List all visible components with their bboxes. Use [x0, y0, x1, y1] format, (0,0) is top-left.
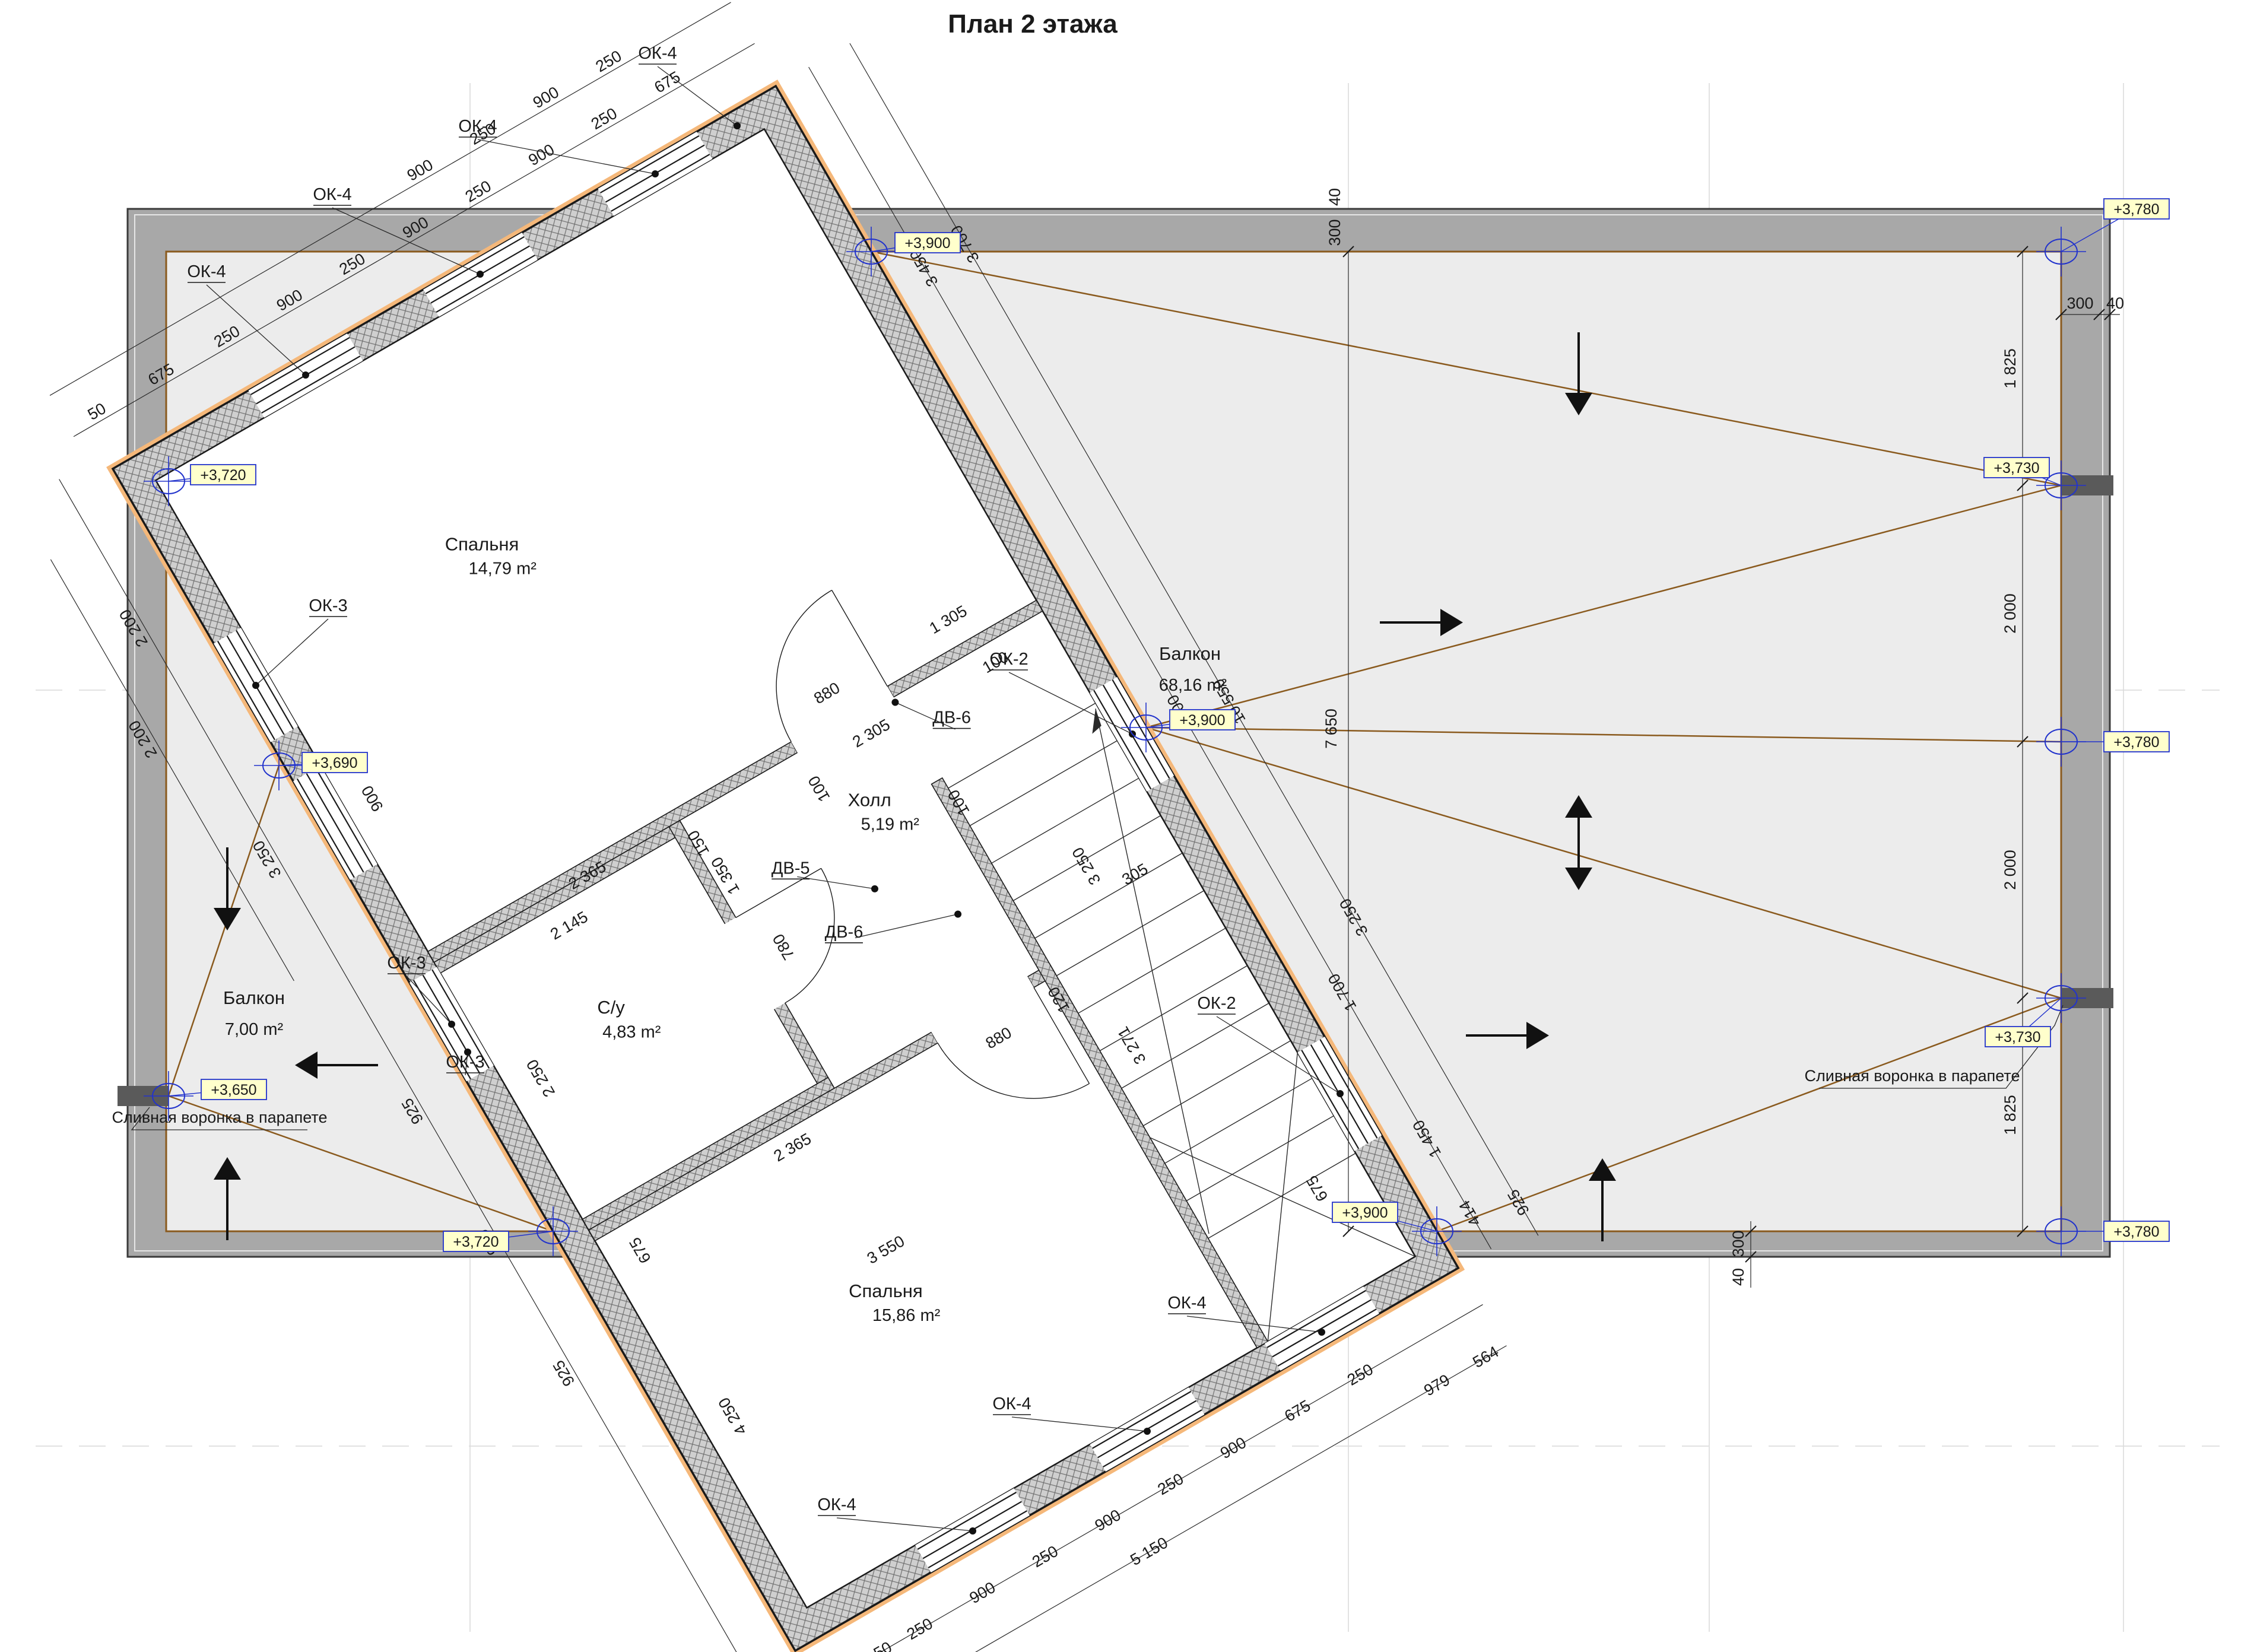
elevation-value: +3,730: [1993, 460, 2039, 476]
room-area: 14,79 m²: [468, 559, 537, 578]
dim-text: 7 650: [1322, 709, 1340, 749]
component-label: ОК-4: [817, 1495, 856, 1514]
floor-plan-canvas: Спальня14,79 m²С/у4,83 m²Холл5,19 m²Спал…: [0, 0, 2257, 1652]
dim-text: 925: [550, 1357, 579, 1389]
leader-dot: [1337, 1090, 1344, 1097]
elevation-value: +3,720: [453, 1234, 499, 1250]
elevation-value: +3,780: [2113, 201, 2159, 218]
dim-text: 675: [1281, 1396, 1313, 1425]
elevation-value: +3,900: [1342, 1205, 1388, 1221]
component-label: ОК-4: [992, 1394, 1031, 1413]
leader-line: [658, 66, 737, 126]
room-name: С/у: [597, 997, 625, 1018]
component-label: ОК-2: [989, 650, 1028, 669]
dim-text: 300: [1326, 219, 1344, 246]
elevation-value: +3,730: [1995, 1029, 2040, 1046]
room-name: Спальня: [849, 1281, 923, 1301]
dim-text: 50: [85, 399, 109, 424]
dim-text: 900: [525, 141, 557, 170]
room-area: 5,19 m²: [861, 815, 920, 834]
room-area: 15,86 m²: [872, 1306, 941, 1325]
dim-text: 564: [1469, 1343, 1502, 1372]
component-label: ДВ-6: [825, 923, 864, 942]
dim-text: 5 150: [1127, 1533, 1171, 1569]
leader-dot: [734, 122, 741, 129]
component-label: ДВ-5: [772, 859, 810, 878]
room-area: 7,00 m²: [225, 1020, 284, 1039]
dim-text: 900: [966, 1578, 998, 1607]
elevation-value: +3,780: [2113, 1224, 2159, 1240]
elevation-value: +3,650: [211, 1082, 256, 1098]
elevation-value: +3,780: [2113, 734, 2159, 751]
component-label: ОК-4: [313, 185, 351, 204]
dim-text: 250: [462, 177, 494, 206]
dim-text: Сливная воронка в парапете: [1805, 1067, 2020, 1085]
dim-text: 2 000: [2001, 850, 2019, 890]
dim-text: 250: [593, 47, 625, 76]
dim-text: 900: [530, 83, 562, 112]
dim-text: 300: [2066, 294, 2093, 312]
dim-text: 250: [1154, 1470, 1186, 1499]
dim-text: 2 000: [2001, 593, 2019, 634]
dim-text: 900: [1217, 1434, 1249, 1463]
room-name: Спальня: [445, 533, 519, 554]
component-label: ОК-4: [638, 44, 677, 63]
drawing-page: Спальня14,79 m²С/у4,83 m²Холл5,19 m²Спал…: [0, 0, 2257, 1652]
dim-text: 250: [904, 1615, 936, 1644]
component-label: ОК-4: [458, 117, 497, 136]
leader-dot: [1318, 1329, 1325, 1336]
dim-text: Сливная воронка в парапете: [112, 1108, 328, 1126]
leader-dot: [302, 371, 309, 379]
dim-text: 40: [1729, 1268, 1747, 1286]
elevation-value: +3,720: [200, 467, 246, 484]
component-label: ОК-4: [1167, 1294, 1206, 1313]
dim-text: 900: [404, 155, 436, 185]
room-name: Холл: [848, 790, 891, 811]
elevation-value: +3,900: [1179, 712, 1225, 729]
leader-dot: [252, 682, 259, 689]
dim-text: 979: [1421, 1371, 1453, 1400]
elevation-value: +3,900: [904, 235, 950, 252]
drawing-title: План 2 этажа: [948, 9, 1118, 39]
room-area: 68,16 m²: [1159, 676, 1227, 695]
component-label: ОК-2: [1197, 994, 1236, 1013]
leader-dot: [969, 1527, 976, 1535]
component-label: ОК-3: [446, 1053, 484, 1072]
room-area: 4,83 m²: [602, 1022, 661, 1041]
leader-dot: [1144, 1428, 1151, 1435]
component-label: ОК-4: [187, 262, 226, 281]
component-label: ДВ-6: [932, 709, 971, 727]
leader-dot: [477, 271, 484, 278]
dim-text: 40: [2106, 294, 2124, 312]
room-name: Балкон: [223, 987, 285, 1008]
leader-dot: [448, 1021, 455, 1028]
dim-text: 1 825: [2001, 1095, 2019, 1135]
dim-text: 250: [1344, 1360, 1376, 1389]
dim-text: 250: [1029, 1542, 1061, 1571]
elevation-value: +3,690: [312, 755, 357, 771]
dim-text: 50: [871, 1638, 895, 1652]
component-label: ОК-3: [309, 596, 347, 615]
leader-line: [478, 139, 655, 174]
component-label: ОК-3: [387, 954, 426, 973]
room-name: Балкон: [1159, 643, 1221, 664]
dim-text: 1 825: [2001, 348, 2019, 389]
leader-dot: [652, 170, 659, 177]
dim-text: 900: [1092, 1506, 1124, 1535]
dim-text: 250: [588, 104, 620, 134]
dim-text: 300: [1729, 1230, 1747, 1257]
dim-text: 40: [1326, 188, 1344, 206]
